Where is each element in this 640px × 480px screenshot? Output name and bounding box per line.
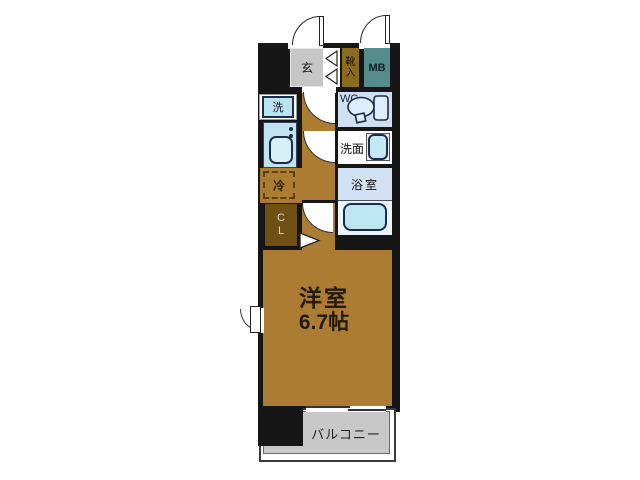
bathroom: 浴室 xyxy=(338,168,392,200)
entrance-door-arc xyxy=(292,16,320,45)
entrance-label: 玄 xyxy=(301,59,313,76)
shoe-cabinet-door-icon xyxy=(323,48,340,87)
entrance-genkan: 玄 xyxy=(290,48,324,87)
refrigerator-space: 冷 xyxy=(263,171,295,199)
washing-machine-icon: 洗 xyxy=(262,96,294,118)
closet-label-char1: C xyxy=(277,212,285,225)
entrance-door-leaf xyxy=(319,16,324,46)
floor-plan: 玄 靴 入 MB 洗 冷 C L WC xyxy=(0,0,640,480)
meter-box-door-arc xyxy=(360,15,386,43)
washer-label: 洗 xyxy=(273,99,284,115)
refrigerator-label: 冷 xyxy=(273,177,285,194)
washroom-vanity xyxy=(366,133,390,161)
shoe-cabinet-label-char1: 靴 xyxy=(346,57,356,68)
meter-box-label: MB xyxy=(368,62,385,74)
main-room-label: 洋室 6.7帖 xyxy=(263,285,385,335)
closet-label-char2: L xyxy=(278,225,284,238)
bathtub-icon xyxy=(343,203,387,231)
shoe-cabinet-label-char2: 入 xyxy=(346,68,356,79)
stove-burner-icon xyxy=(289,127,293,131)
sliding-window-pane-left xyxy=(306,406,350,408)
bathroom-label: 浴室 xyxy=(351,176,379,193)
window-leaf xyxy=(250,306,261,333)
closet: C L xyxy=(264,203,298,247)
balcony-label: バルコニー xyxy=(300,424,392,443)
sliding-window-pane-right xyxy=(348,409,386,411)
balcony-side-wall xyxy=(258,404,303,446)
main-room-name: 洋室 xyxy=(263,285,385,311)
main-room-size: 6.7帖 xyxy=(263,311,385,335)
meter-box-door-leaf xyxy=(385,15,390,44)
washing-machine-space: 洗 xyxy=(259,94,297,120)
toilet-icon xyxy=(344,93,392,126)
kitchen-sink-icon xyxy=(269,136,293,164)
washroom-label: 洗面 xyxy=(340,140,364,157)
shoe-cabinet: 靴 入 xyxy=(342,48,359,87)
washroom-sink-icon xyxy=(368,134,388,160)
closet-door-icon xyxy=(298,231,322,250)
meter-box: MB xyxy=(364,48,390,87)
